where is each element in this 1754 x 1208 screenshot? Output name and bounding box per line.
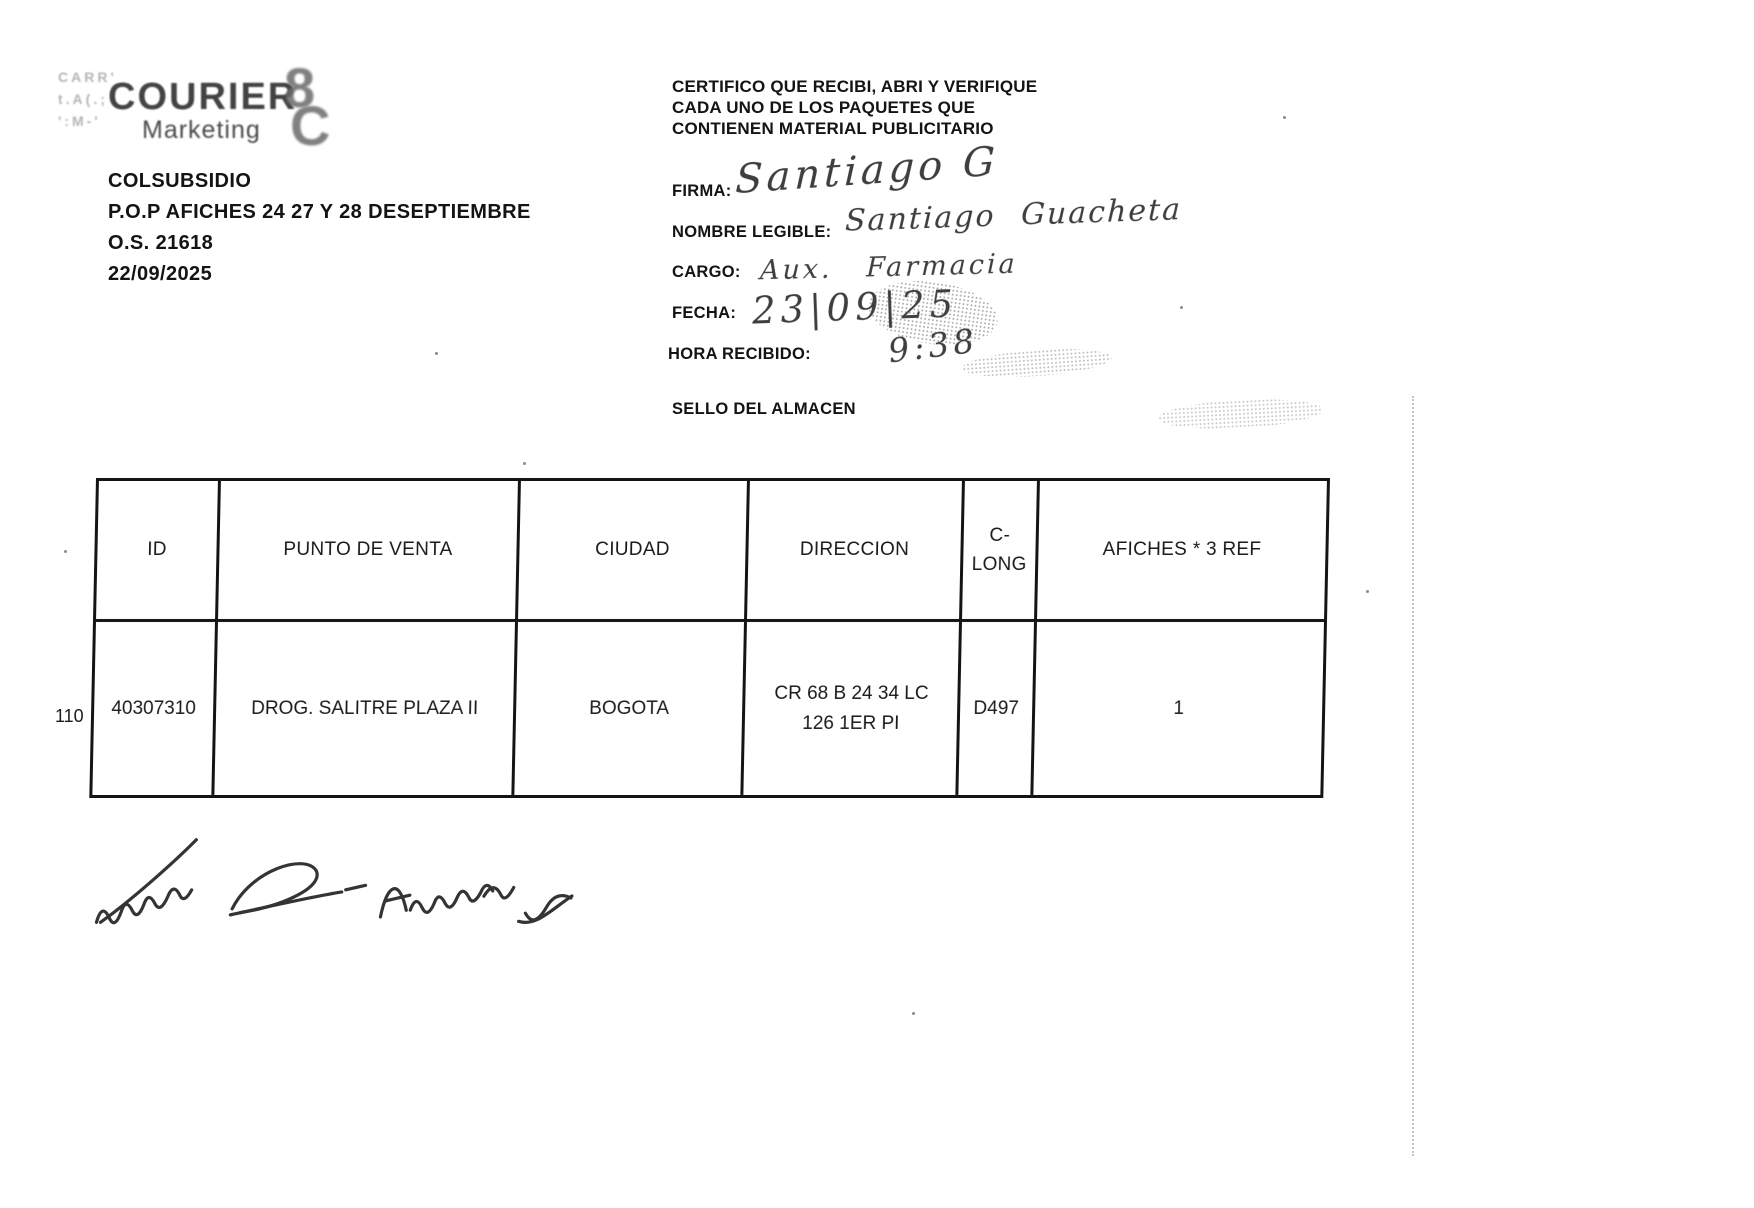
courier-logo-text: COURIER bbox=[108, 76, 297, 119]
table-cell-direccion: CR 68 B 24 34 LC 126 1ER PI bbox=[743, 622, 962, 795]
column-header-c-long: C-LONG bbox=[962, 481, 1040, 622]
firma-label: FIRMA: bbox=[672, 182, 732, 201]
client-name: COLSUBSIDIO bbox=[108, 166, 531, 197]
table-cell-punto-de-venta: DROG. SALITRE PLAZA II bbox=[214, 622, 518, 795]
table-row-number: 110 bbox=[55, 706, 84, 727]
nombre-legible-label: NOMBRE LEGIBLE: bbox=[672, 223, 831, 242]
table-cell-c-long: D497 bbox=[958, 622, 1037, 795]
sello-almacen-label: SELLO DEL ALMACEN bbox=[672, 400, 856, 419]
firma-handwritten-value: Santiago G bbox=[735, 139, 1000, 204]
scan-speck bbox=[523, 462, 526, 465]
order-number: O.S. 21618 bbox=[108, 228, 531, 259]
shipment-info-block: COLSUBSIDIO P.O.P AFICHES 24 27 Y 28 DES… bbox=[108, 166, 531, 290]
scan-speck bbox=[435, 352, 438, 355]
scan-speck bbox=[1180, 306, 1183, 309]
column-header-id: ID bbox=[96, 481, 221, 622]
scan-speck bbox=[1283, 116, 1286, 119]
stamp-smudge bbox=[1157, 396, 1323, 433]
scan-speck bbox=[64, 550, 67, 553]
column-header-direccion: DIRECCION bbox=[747, 481, 965, 622]
certification-line: CADA UNO DE LOS PAQUETES QUE bbox=[672, 97, 1037, 118]
table-cell-ciudad: BOGOTA bbox=[514, 622, 747, 795]
certification-line: CONTIENEN MATERIAL PUBLICITARIO bbox=[672, 118, 1037, 139]
column-header-ciudad: CIUDAD bbox=[518, 481, 750, 622]
shipment-date: 22/09/2025 bbox=[108, 259, 531, 290]
scanned-delivery-receipt: CARR' t.A(.; ':M-' COURIER Marketing 8 C… bbox=[0, 0, 1754, 1208]
scan-fold-line bbox=[1412, 396, 1414, 1156]
fecha-label: FECHA: bbox=[672, 304, 736, 323]
cargo-label: CARGO: bbox=[672, 263, 741, 282]
column-header-punto-de-venta: PUNTO DE VENTA bbox=[218, 481, 521, 622]
hora-recibido-label: HORA RECIBIDO: bbox=[668, 345, 811, 364]
column-header-afiches: AFICHES * 3 REF bbox=[1037, 481, 1327, 622]
stamp-smudge bbox=[961, 345, 1112, 381]
certification-block: CERTIFICO QUE RECIBI, ABRI Y VERIFIQUE C… bbox=[672, 76, 1037, 139]
nombre-handwritten-value: Santiago Guacheta bbox=[844, 192, 1182, 239]
certification-line: CERTIFICO QUE RECIBI, ABRI Y VERIFIQUE bbox=[672, 76, 1037, 97]
scan-speck bbox=[1366, 590, 1369, 593]
scan-speck bbox=[912, 1012, 915, 1015]
table-cell-id: 40307310 bbox=[92, 622, 218, 795]
cargo-handwritten-value: Aux. Farmacia bbox=[760, 249, 1018, 287]
bottom-signature bbox=[78, 819, 602, 983]
campaign-name: P.O.P AFICHES 24 27 Y 28 DESEPTIEMBRE bbox=[108, 197, 531, 228]
courier-logo-mark-icon: C bbox=[290, 98, 330, 154]
distribution-table: ID PUNTO DE VENTA CIUDAD DIRECCION C-LON… bbox=[89, 478, 1330, 798]
table-cell-afiches: 1 bbox=[1033, 622, 1324, 795]
courier-logo-subtext: Marketing bbox=[142, 116, 261, 145]
